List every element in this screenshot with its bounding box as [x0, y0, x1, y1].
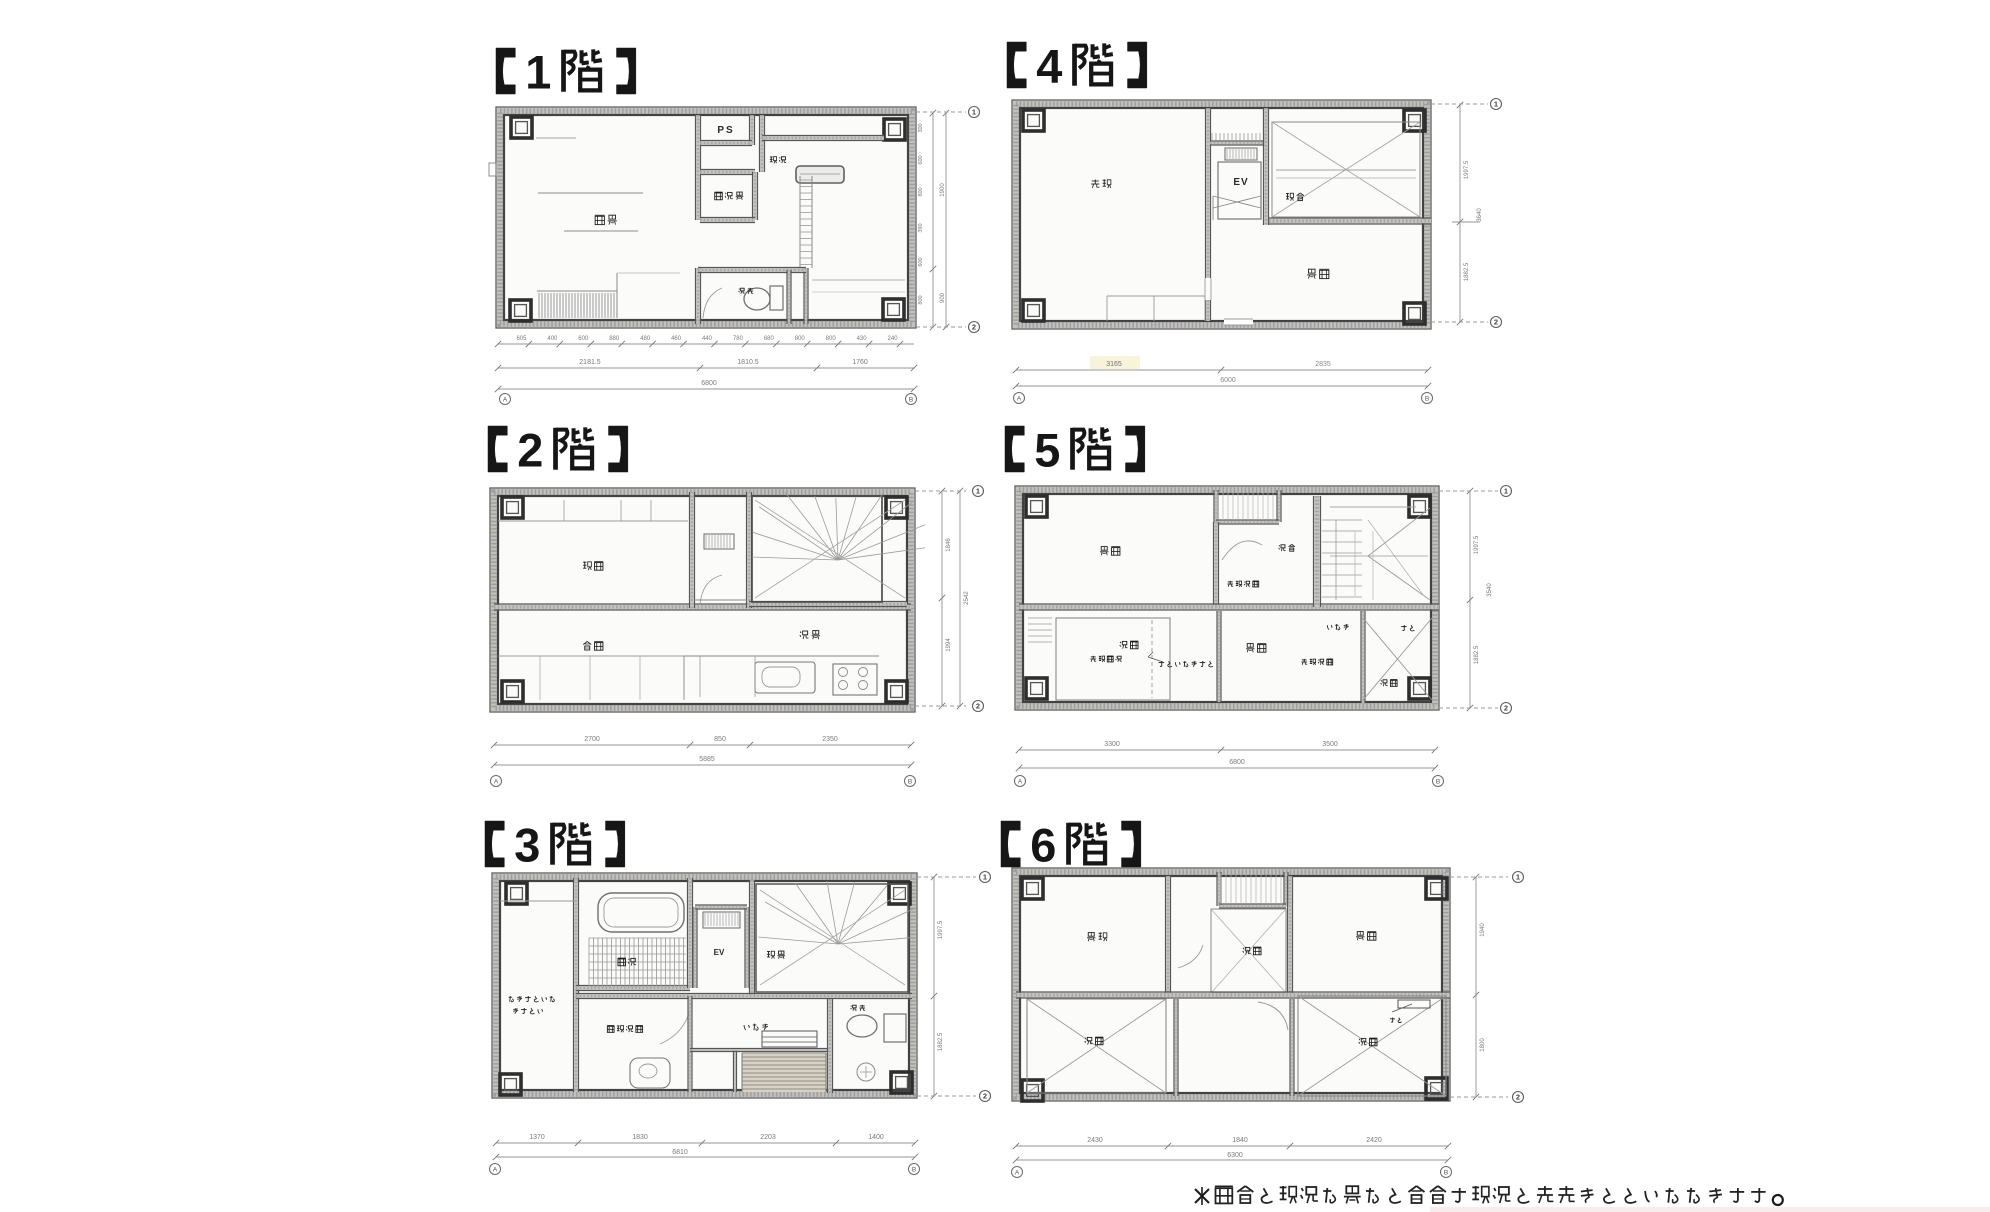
svg-text:800: 800 — [826, 336, 837, 342]
svg-text:2700: 2700 — [584, 736, 600, 743]
svg-text:300: 300 — [918, 123, 924, 132]
svg-text:1900: 1900 — [940, 183, 946, 197]
svg-text:600: 600 — [578, 336, 589, 342]
svg-text:2542: 2542 — [964, 591, 970, 605]
svg-text:800: 800 — [918, 295, 924, 304]
svg-text:2: 2 — [1494, 318, 1498, 327]
svg-text:1997.5: 1997.5 — [938, 920, 944, 939]
svg-text:A: A — [494, 778, 499, 785]
svg-text:4: 4 — [1036, 40, 1062, 92]
svg-text:1760: 1760 — [852, 359, 868, 366]
svg-text:2181.5: 2181.5 — [579, 359, 601, 366]
svg-text:B: B — [1436, 778, 1440, 785]
svg-text:1: 1 — [1504, 487, 1508, 496]
svg-text:PS: PS — [717, 125, 734, 136]
svg-text:2: 2 — [976, 702, 980, 711]
svg-text:2835: 2835 — [1315, 361, 1331, 368]
svg-text:1: 1 — [983, 873, 987, 882]
svg-text:B: B — [909, 396, 913, 403]
svg-text:850: 850 — [714, 736, 726, 743]
svg-text:B: B — [1425, 395, 1429, 402]
svg-text:5885: 5885 — [699, 756, 715, 763]
svg-text:B: B — [912, 1166, 916, 1173]
svg-text:A: A — [493, 1166, 498, 1173]
svg-text:A: A — [1018, 778, 1023, 785]
svg-text:3500: 3500 — [1322, 741, 1338, 748]
svg-text:1882.5: 1882.5 — [938, 1032, 944, 1051]
svg-text:3640: 3640 — [1477, 208, 1483, 222]
svg-text:2350: 2350 — [822, 736, 838, 743]
svg-text:1810.5: 1810.5 — [737, 359, 759, 366]
svg-text:3165: 3165 — [1106, 361, 1122, 368]
svg-text:B: B — [1444, 1169, 1448, 1176]
svg-text:430: 430 — [857, 336, 868, 342]
svg-text:800: 800 — [795, 336, 806, 342]
svg-text:5: 5 — [1034, 424, 1060, 476]
svg-text:680: 680 — [764, 336, 775, 342]
svg-text:EV: EV — [714, 948, 725, 957]
svg-text:1994: 1994 — [946, 638, 952, 652]
svg-text:2: 2 — [1504, 704, 1508, 713]
svg-text:1997.5: 1997.5 — [1464, 160, 1470, 179]
svg-text:1997.5: 1997.5 — [1474, 535, 1480, 554]
svg-text:900: 900 — [940, 292, 946, 303]
svg-text:240: 240 — [888, 336, 899, 342]
svg-text:2: 2 — [972, 323, 976, 332]
svg-text:800: 800 — [918, 187, 924, 196]
svg-text:605: 605 — [516, 336, 527, 342]
svg-text:600: 600 — [918, 155, 924, 164]
svg-text:1800: 1800 — [1480, 1038, 1486, 1052]
svg-text:1400: 1400 — [868, 1134, 884, 1141]
svg-text:2430: 2430 — [1087, 1137, 1103, 1144]
svg-text:1: 1 — [976, 487, 980, 496]
svg-text:1882.5: 1882.5 — [1464, 262, 1470, 281]
svg-text:1: 1 — [525, 46, 551, 98]
svg-text:1: 1 — [1494, 100, 1498, 109]
svg-text:1882.5: 1882.5 — [1474, 645, 1480, 664]
svg-text:1940: 1940 — [1480, 923, 1486, 937]
svg-text:A: A — [1017, 395, 1022, 402]
svg-text:A: A — [503, 396, 508, 403]
svg-text:B: B — [908, 778, 912, 785]
svg-text:1830: 1830 — [632, 1134, 648, 1141]
svg-text:480: 480 — [640, 336, 651, 342]
svg-text:EV: EV — [1233, 177, 1248, 188]
svg-text:1: 1 — [1516, 873, 1520, 882]
svg-text:2203: 2203 — [760, 1134, 776, 1141]
svg-text:400: 400 — [547, 336, 558, 342]
svg-text:6810: 6810 — [672, 1149, 688, 1156]
svg-text:1370: 1370 — [529, 1134, 545, 1141]
svg-text:2: 2 — [517, 424, 543, 476]
svg-text:6300: 6300 — [1227, 1152, 1243, 1159]
svg-text:6: 6 — [1030, 819, 1056, 871]
svg-text:2: 2 — [983, 1092, 987, 1101]
svg-text:880: 880 — [609, 336, 620, 342]
svg-text:A: A — [1015, 1169, 1020, 1176]
svg-text:2: 2 — [1516, 1093, 1520, 1102]
svg-text:600: 600 — [918, 257, 924, 266]
svg-text:6800: 6800 — [701, 380, 717, 387]
svg-text:3540: 3540 — [1487, 583, 1493, 597]
svg-text:780: 780 — [733, 336, 744, 342]
svg-text:6800: 6800 — [1229, 759, 1245, 766]
svg-text:460: 460 — [671, 336, 682, 342]
svg-text:1: 1 — [972, 108, 976, 117]
svg-text:2420: 2420 — [1366, 1137, 1382, 1144]
svg-text:390: 390 — [918, 223, 924, 232]
svg-text:3300: 3300 — [1104, 741, 1120, 748]
svg-text:1840: 1840 — [1232, 1137, 1248, 1144]
svg-text:1846: 1846 — [946, 538, 952, 552]
svg-text:6000: 6000 — [1220, 377, 1236, 384]
svg-text:440: 440 — [702, 336, 713, 342]
svg-text:3: 3 — [514, 819, 540, 871]
